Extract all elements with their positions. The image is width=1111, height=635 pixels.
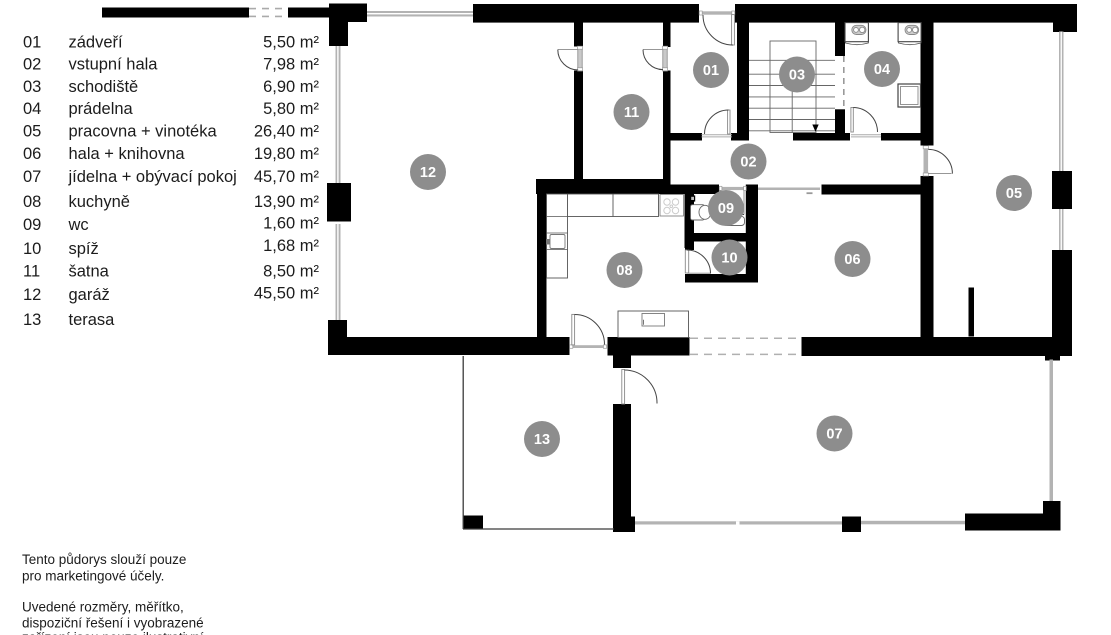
- svg-text:07: 07: [826, 427, 842, 443]
- svg-text:prádelna: prádelna: [69, 100, 134, 118]
- svg-text:1,68 m²: 1,68 m²: [263, 237, 319, 255]
- svg-text:zařízení jsou pouze ilustrativ: zařízení jsou pouze ilustrativní.: [22, 630, 207, 635]
- svg-text:terasa: terasa: [69, 311, 116, 329]
- svg-text:8,50 m²: 8,50 m²: [263, 263, 319, 281]
- svg-text:wc: wc: [68, 216, 89, 234]
- svg-text:10: 10: [721, 251, 737, 267]
- svg-text:Tento půdorys slouží pouze: Tento půdorys slouží pouze: [22, 552, 186, 567]
- svg-text:vstupní hala: vstupní hala: [69, 56, 159, 74]
- svg-text:13: 13: [23, 311, 41, 329]
- svg-text:12: 12: [23, 286, 41, 304]
- svg-text:1,60 m²: 1,60 m²: [263, 215, 319, 233]
- svg-text:5,80 m²: 5,80 m²: [263, 100, 319, 118]
- svg-text:03: 03: [23, 78, 41, 96]
- svg-text:01: 01: [703, 63, 719, 79]
- svg-text:04: 04: [874, 62, 890, 78]
- svg-text:pro marketingové účely.: pro marketingové účely.: [22, 569, 164, 584]
- svg-text:7,98 m²: 7,98 m²: [263, 56, 319, 74]
- svg-text:hala + knihovna: hala + knihovna: [69, 145, 186, 163]
- svg-text:05: 05: [1006, 186, 1022, 202]
- svg-text:10: 10: [23, 240, 41, 258]
- svg-text:schodiště: schodiště: [69, 78, 139, 96]
- svg-text:šatna: šatna: [69, 263, 110, 281]
- svg-text:12: 12: [420, 165, 436, 181]
- svg-text:08: 08: [616, 263, 632, 279]
- svg-text:11: 11: [23, 263, 40, 281]
- svg-text:06: 06: [844, 252, 860, 268]
- svg-text:spíž: spíž: [69, 240, 99, 258]
- svg-text:01: 01: [23, 33, 41, 51]
- svg-text:03: 03: [789, 68, 805, 84]
- svg-text:04: 04: [23, 100, 41, 118]
- svg-text:02: 02: [23, 56, 41, 74]
- svg-text:19,80 m²: 19,80 m²: [254, 145, 320, 163]
- svg-text:Uvedené rozměry, měřítko,: Uvedené rozměry, měřítko,: [22, 600, 184, 615]
- svg-text:zádveří: zádveří: [69, 33, 124, 51]
- svg-text:06: 06: [23, 145, 41, 163]
- svg-text:jídelna + obývací pokoj: jídelna + obývací pokoj: [68, 168, 237, 186]
- svg-text:07: 07: [23, 168, 41, 186]
- svg-text:09: 09: [23, 216, 41, 234]
- svg-text:5,50 m²: 5,50 m²: [263, 33, 319, 51]
- svg-text:6,90 m²: 6,90 m²: [263, 78, 319, 96]
- svg-text:garáž: garáž: [69, 286, 110, 304]
- svg-text:kuchyně: kuchyně: [69, 193, 130, 211]
- svg-text:05: 05: [23, 122, 41, 140]
- svg-text:08: 08: [23, 193, 41, 211]
- svg-text:13: 13: [534, 432, 550, 448]
- svg-text:pracovna + vinotéka: pracovna + vinotéka: [69, 122, 218, 140]
- svg-text:13,90 m²: 13,90 m²: [254, 193, 320, 211]
- svg-text:45,50 m²: 45,50 m²: [254, 285, 320, 303]
- svg-text:26,40 m²: 26,40 m²: [254, 122, 320, 140]
- svg-text:09: 09: [718, 201, 734, 217]
- svg-text:02: 02: [740, 155, 756, 171]
- svg-text:45,70 m²: 45,70 m²: [254, 168, 320, 186]
- svg-text:dispoziční řešení i vyobrazené: dispoziční řešení i vyobrazené: [22, 616, 204, 631]
- svg-text:11: 11: [624, 105, 639, 121]
